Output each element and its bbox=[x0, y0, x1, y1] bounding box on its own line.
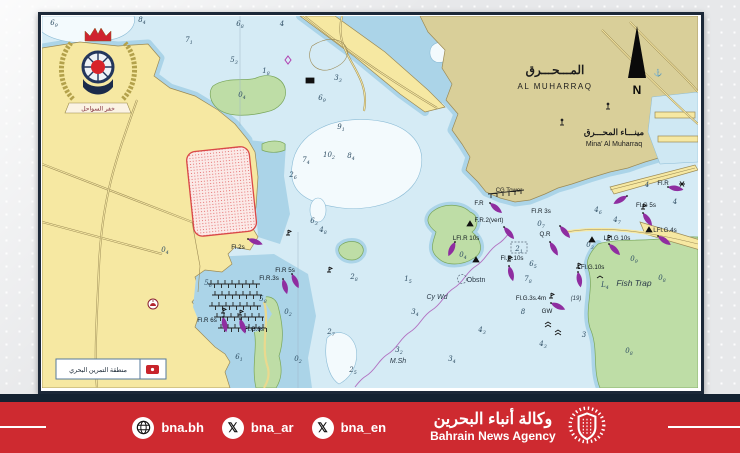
depth-sounding: 4 bbox=[644, 181, 649, 189]
restricted-area bbox=[186, 146, 258, 237]
light-label: Fl.G.6s bbox=[244, 326, 264, 333]
depth-sounding: 4 bbox=[279, 20, 284, 28]
north-label: N bbox=[633, 83, 642, 97]
title-english: AL MUHARRAQ bbox=[518, 82, 593, 91]
mosque-symbol bbox=[148, 299, 158, 309]
depth-sounding: 8 bbox=[521, 308, 526, 316]
link-label: bna_en bbox=[341, 420, 387, 435]
nautical-chart: ⚓ N المـــحـــرق AL MUHARRAQ مينـــاء ال… bbox=[42, 16, 698, 388]
agency-name-english: Bahrain News Agency bbox=[430, 430, 556, 444]
light-label: Fl.R 3s bbox=[531, 208, 551, 215]
light-label: Fl.R 5s bbox=[275, 267, 295, 274]
tidal-flat bbox=[339, 242, 364, 261]
x-icon: 𝕏 bbox=[222, 417, 244, 439]
seabed-label: Obstn bbox=[467, 277, 486, 284]
exercise-area-box: منطقة التمرين البحري bbox=[56, 359, 166, 379]
link-twitter-en[interactable]: 𝕏 bna_en bbox=[312, 417, 387, 439]
port-name-english: Mina' Al Muharraq bbox=[586, 141, 642, 148]
light-label: F.R bbox=[474, 200, 484, 207]
light-label: Fl.R bbox=[657, 180, 669, 187]
agency-branding: وكالة أنباء البحرين Bahrain News Agency bbox=[430, 404, 608, 451]
tidal-flat bbox=[262, 141, 285, 152]
emblem-banner-text: خفر السواحل bbox=[81, 106, 115, 113]
light-label: GW bbox=[542, 308, 553, 315]
light-label: F.R.2(vert) bbox=[475, 217, 504, 224]
light-label: LFl.G.10s bbox=[578, 264, 605, 271]
x-icon: 𝕏 bbox=[312, 417, 334, 439]
depth-sounding: 3 bbox=[582, 331, 587, 339]
anchorage-icon: ⚓ bbox=[654, 68, 663, 77]
tidal-flat bbox=[210, 76, 285, 116]
seabed-label: Cy Wd bbox=[427, 294, 449, 301]
light-label: LFl.R 10s bbox=[453, 235, 479, 242]
light-label: Fl.R 6s bbox=[197, 317, 217, 324]
link-label: bna.bh bbox=[161, 420, 204, 435]
light-label: Q.R bbox=[539, 231, 551, 238]
place-labels: CG Tower bbox=[496, 188, 523, 194]
divider-line bbox=[668, 426, 740, 428]
footer-banner: bna.bh 𝕏 bna_ar 𝕏 bna_en وكالة أنباء الب… bbox=[0, 402, 740, 453]
bna-logo bbox=[566, 404, 608, 451]
light-label: Fl.2s bbox=[231, 244, 244, 251]
nautical-chart-frame: ⚓ N المـــحـــرق AL MUHARRAQ مينـــاء ال… bbox=[38, 12, 704, 394]
link-twitter-ar[interactable]: 𝕏 bna_ar bbox=[222, 417, 294, 439]
light-label: LFl.G.4s bbox=[653, 227, 676, 234]
divider-line bbox=[0, 426, 46, 428]
exercise-area-label: منطقة التمرين البحري bbox=[69, 367, 127, 374]
link-label: bna_ar bbox=[251, 420, 294, 435]
depth-sounding: 4 bbox=[672, 198, 677, 206]
title-arabic: المـــحـــرق bbox=[526, 63, 585, 78]
seabed-label: (19) bbox=[571, 296, 582, 302]
globe-icon bbox=[132, 417, 154, 439]
landmark-symbol bbox=[306, 78, 314, 83]
agency-name-arabic: وكالة أنباء البحرين bbox=[430, 411, 556, 429]
link-website[interactable]: bna.bh bbox=[132, 417, 204, 439]
bna-news-image: ⚓ N المـــحـــرق AL MUHARRAQ مينـــاء ال… bbox=[0, 0, 740, 453]
place-label: CG Tower bbox=[496, 188, 523, 194]
light-label: Fl.R.3s bbox=[259, 275, 279, 282]
light-label: Fl.G.3s.4m bbox=[516, 295, 546, 302]
seabed-label: M.Sh bbox=[390, 358, 406, 365]
footer-navy-bar bbox=[0, 394, 740, 402]
seabed-label: Fish Trap bbox=[616, 278, 652, 288]
tidal-flat bbox=[587, 237, 698, 388]
port-name-arabic: مينـــاء المحـــرق bbox=[584, 127, 645, 138]
light-label: Fl.R.10s bbox=[500, 255, 523, 262]
